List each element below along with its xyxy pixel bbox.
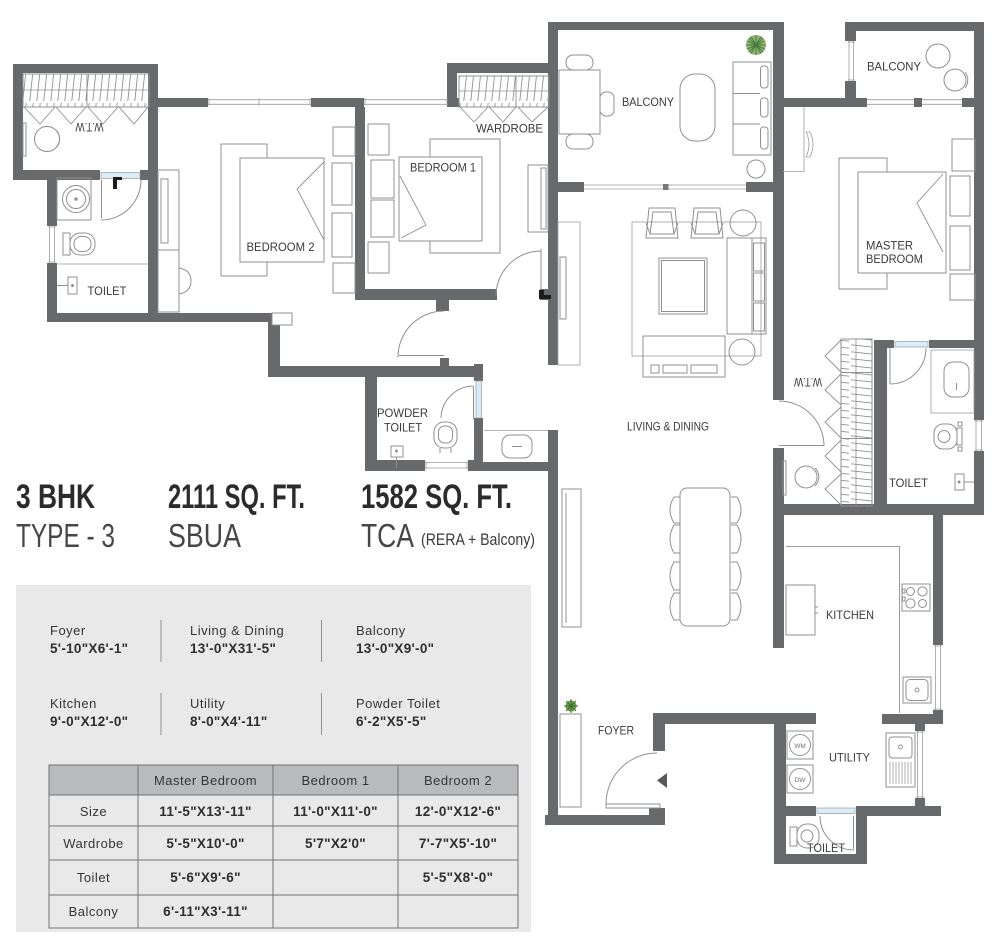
svg-text:Balcony: Balcony (69, 904, 119, 919)
svg-text:11'-0"X11'-0": 11'-0"X11'-0" (293, 804, 378, 819)
svg-text:SBUA: SBUA (168, 517, 241, 554)
svg-text:BEDROOM 1: BEDROOM 1 (410, 161, 476, 175)
svg-text:5'-6"X9'-6": 5'-6"X9'-6" (170, 870, 241, 885)
svg-text:Powder Toilet: Powder Toilet (356, 696, 440, 711)
svg-text:Wardrobe: Wardrobe (63, 836, 124, 851)
svg-text:Balcony: Balcony (356, 623, 406, 638)
svg-text:BEDROOM 2: BEDROOM 2 (247, 240, 315, 254)
svg-text:WARDROBE: WARDROBE (476, 122, 543, 136)
svg-text:5'-5"X8'-0": 5'-5"X8'-0" (423, 870, 494, 885)
svg-text:W.T.W: W.T.W (75, 120, 104, 134)
svg-text:Living & Dining: Living & Dining (190, 623, 284, 638)
svg-text:Size: Size (80, 804, 107, 819)
svg-text:TOILET: TOILET (88, 284, 128, 298)
svg-text:Master Bedroom: Master Bedroom (154, 773, 257, 788)
svg-text:9'-0"X12'-0": 9'-0"X12'-0" (50, 714, 128, 729)
svg-text:12'-0"X12'-6": 12'-0"X12'-6" (415, 804, 501, 819)
svg-text:TYPE - 3: TYPE - 3 (16, 517, 115, 554)
svg-text:TOILET: TOILET (384, 421, 423, 435)
svg-text:5'-10"X6'-1": 5'-10"X6'-1" (50, 641, 128, 656)
svg-text:POWDER: POWDER (377, 406, 428, 420)
svg-text:BALCONY: BALCONY (622, 95, 674, 109)
svg-text:TOILET: TOILET (889, 476, 929, 490)
svg-text:1582 SQ. FT.: 1582 SQ. FT. (361, 478, 512, 516)
svg-text:11'-5"X13'-11": 11'-5"X13'-11" (159, 804, 251, 819)
svg-text:Utility: Utility (190, 696, 225, 711)
svg-text:LIVING & DINING: LIVING & DINING (627, 420, 709, 434)
svg-text:DW: DW (795, 777, 807, 784)
svg-text:FOYER: FOYER (598, 724, 634, 738)
svg-text:TOILET: TOILET (807, 841, 846, 855)
svg-text:BALCONY: BALCONY (867, 60, 921, 74)
svg-text:Toilet: Toilet (77, 870, 110, 885)
svg-text:W.T.W: W.T.W (793, 375, 822, 389)
svg-text:13'-0"X31'-5": 13'-0"X31'-5" (190, 641, 276, 656)
svg-text:2111 SQ. FT.: 2111 SQ. FT. (168, 478, 305, 516)
svg-text:Bedroom 2: Bedroom 2 (424, 773, 492, 788)
svg-text:WM: WM (794, 743, 806, 750)
svg-text:5'-5"X10'-0": 5'-5"X10'-0" (166, 836, 244, 851)
svg-text:6'-11"X3'-11": 6'-11"X3'-11" (163, 904, 248, 919)
svg-text:7'-7"X5'-10": 7'-7"X5'-10" (419, 836, 497, 851)
svg-text:MASTER: MASTER (866, 239, 913, 253)
svg-text:Kitchen: Kitchen (50, 696, 97, 711)
svg-text:Bedroom 1: Bedroom 1 (301, 773, 369, 788)
svg-text:Foyer: Foyer (50, 623, 86, 638)
svg-text:3 BHK: 3 BHK (16, 478, 95, 516)
svg-text:BEDROOM: BEDROOM (866, 252, 923, 266)
svg-text:8'-0"X4'-11": 8'-0"X4'-11" (190, 714, 268, 729)
svg-text:6'-2"X5'-5": 6'-2"X5'-5" (356, 714, 427, 729)
svg-text:TCA: TCA (361, 517, 414, 554)
svg-text:KITCHEN: KITCHEN (826, 608, 874, 622)
svg-text:UTILITY: UTILITY (829, 751, 870, 765)
svg-text:5'7"X2'0": 5'7"X2'0" (305, 836, 366, 851)
svg-text:13'-0"X9'-0": 13'-0"X9'-0" (356, 641, 434, 656)
svg-text:(RERA + Balcony): (RERA + Balcony) (421, 530, 535, 549)
